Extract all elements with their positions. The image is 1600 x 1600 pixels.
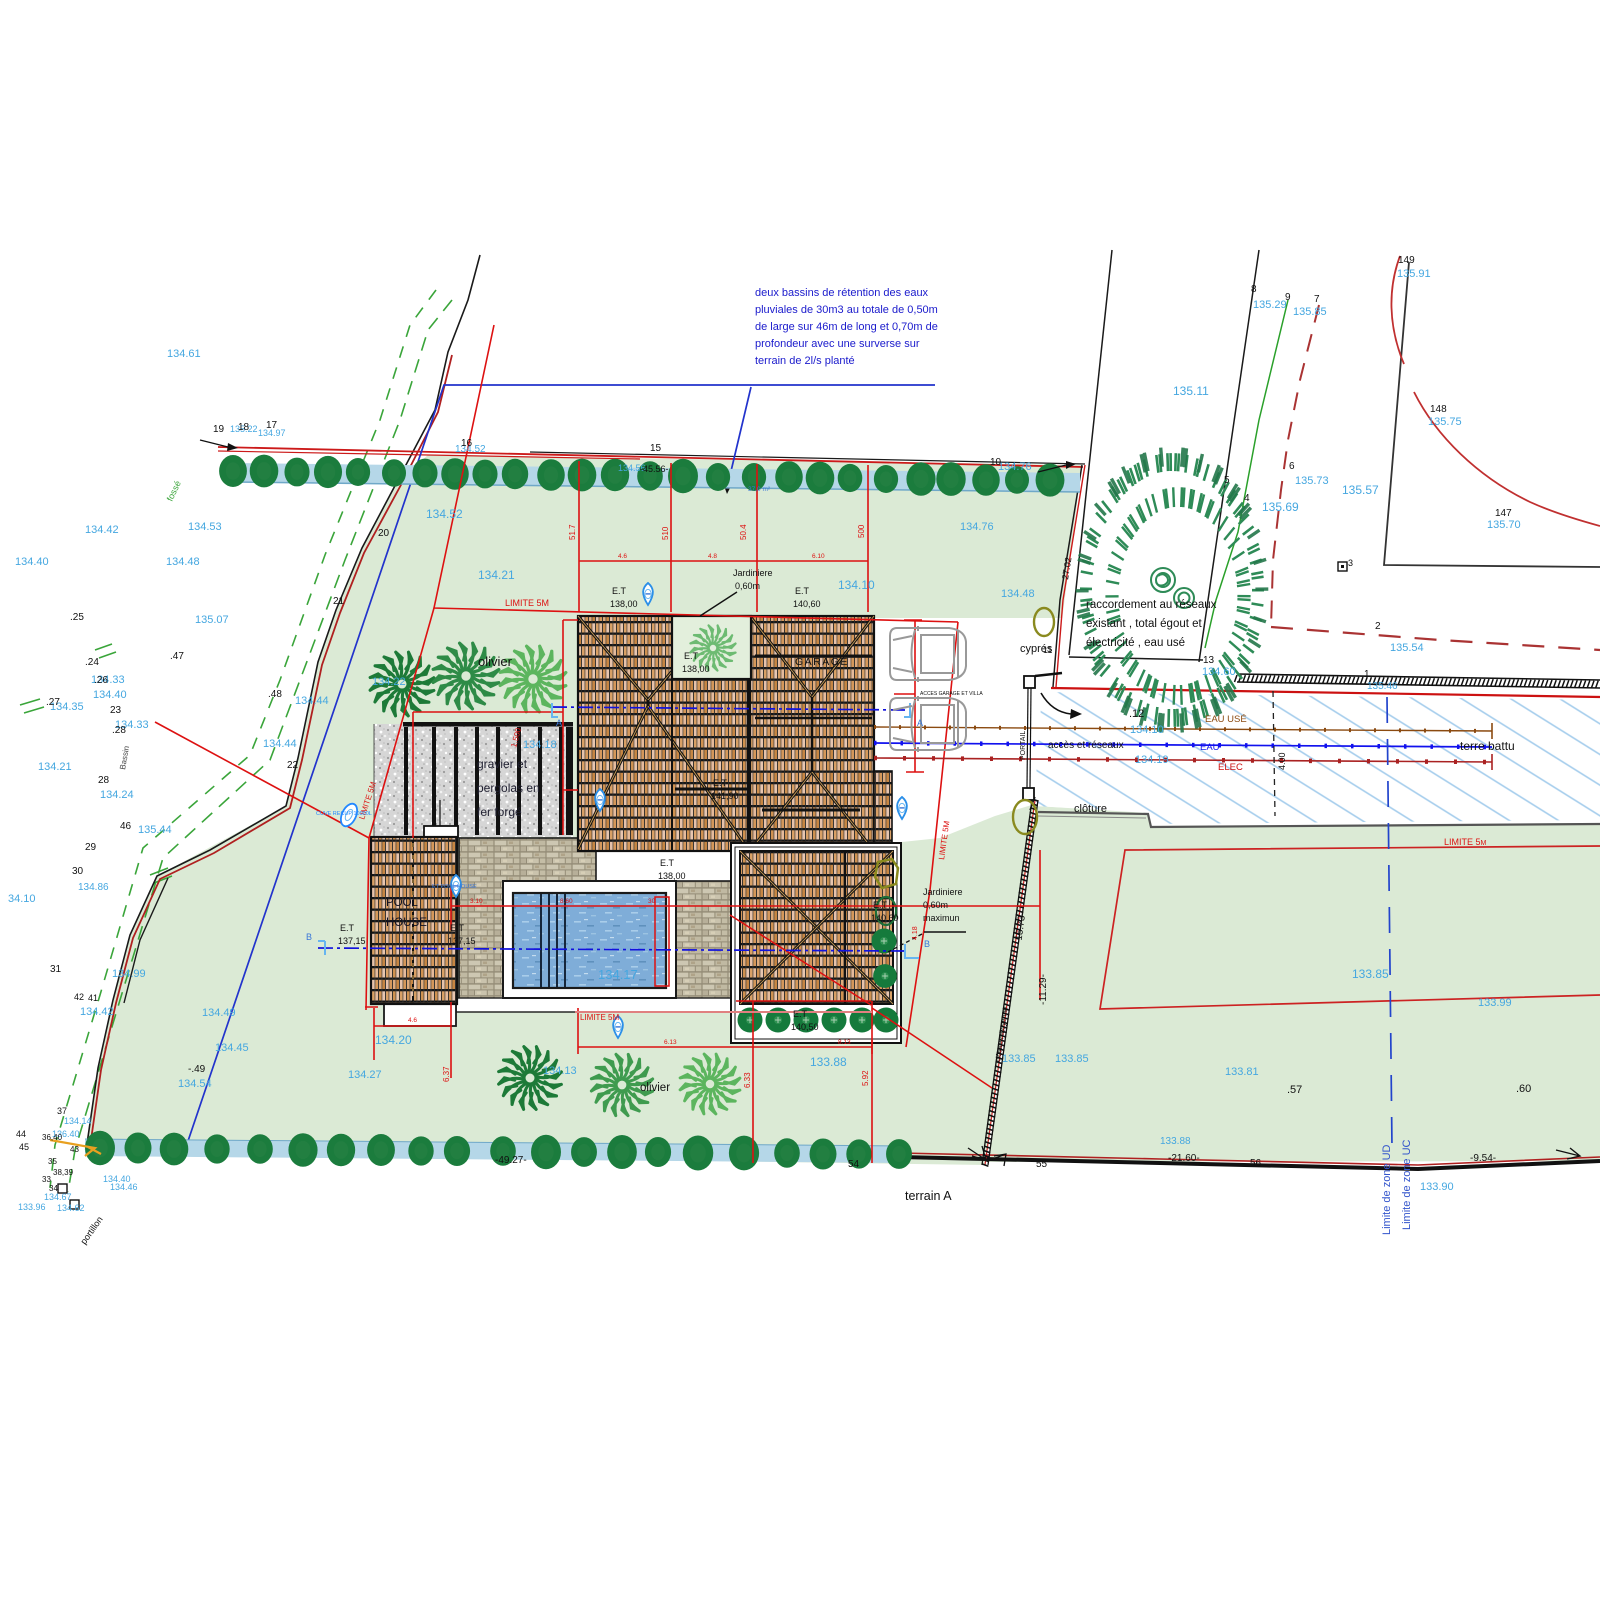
svg-text:134.27: 134.27: [348, 1069, 382, 1081]
svg-text:6.13: 6.13: [664, 1039, 677, 1046]
svg-text:134.60: 134.60: [1202, 666, 1236, 678]
svg-text:134.53: 134.53: [188, 521, 222, 533]
svg-text:raccordement au réseaux: raccordement au réseaux: [1086, 599, 1217, 611]
svg-text:134.76: 134.76: [960, 521, 994, 533]
svg-text:4.6: 4.6: [618, 553, 627, 560]
svg-text:B: B: [924, 939, 930, 949]
svg-text:pergolas en: pergolas en: [477, 781, 540, 795]
svg-text:5.92: 5.92: [861, 1070, 870, 1086]
svg-text:EAU USÉ: EAU USÉ: [1205, 714, 1247, 725]
svg-text:19: 19: [213, 424, 225, 435]
svg-text:35: 35: [48, 1157, 57, 1166]
svg-text:55: 55: [1036, 1159, 1048, 1170]
svg-text:fer forgé: fer forgé: [477, 805, 522, 819]
svg-text:134.21: 134.21: [38, 761, 72, 773]
svg-text:37: 37: [57, 1106, 67, 1116]
svg-text:31: 31: [50, 964, 62, 975]
svg-text:16: 16: [461, 438, 473, 449]
svg-text:134.42: 134.42: [85, 524, 119, 536]
svg-text:.28: .28: [112, 725, 126, 736]
svg-text:149: 149: [1398, 255, 1415, 266]
svg-text:43: 43: [70, 1145, 79, 1154]
svg-text:-45.56-: -45.56-: [640, 464, 669, 474]
svg-text:A: A: [917, 718, 923, 728]
svg-text:LIMITE 5M: LIMITE 5M: [580, 1013, 619, 1022]
svg-text:E.T: E.T: [660, 858, 675, 868]
svg-text:.60: .60: [1516, 1083, 1531, 1095]
svg-text:134.99: 134.99: [112, 968, 146, 980]
svg-text:133.81: 133.81: [1225, 1066, 1259, 1078]
svg-text:133.96: 133.96: [18, 1202, 46, 1212]
svg-text:4.6: 4.6: [408, 1017, 417, 1024]
svg-text:gravier et: gravier et: [477, 757, 528, 771]
svg-text:135.44: 135.44: [138, 824, 172, 836]
svg-text:36,40: 36,40: [42, 1133, 63, 1142]
svg-text:.47: .47: [170, 651, 184, 662]
svg-text:45: 45: [19, 1142, 29, 1152]
svg-text:134.52: 134.52: [426, 507, 463, 521]
svg-text:EAU: EAU: [1200, 742, 1220, 753]
svg-text:ELEC: ELEC: [1218, 762, 1243, 773]
svg-text:134.44: 134.44: [295, 695, 329, 707]
svg-text:8.13: 8.13: [838, 1039, 851, 1046]
svg-text:clôture: clôture: [1074, 803, 1107, 815]
svg-text:15: 15: [650, 443, 662, 454]
svg-text:510: 510: [661, 526, 670, 540]
svg-text:133.85: 133.85: [1055, 1053, 1089, 1065]
svg-text:4: 4: [1244, 493, 1250, 504]
svg-text:électricité , eau usé: électricité , eau usé: [1086, 637, 1185, 649]
svg-text:51.7: 51.7: [568, 524, 577, 540]
svg-text:134.49: 134.49: [202, 1007, 236, 1019]
svg-text:-49.27-: -49.27-: [495, 1155, 527, 1166]
svg-text:137,15: 137,15: [448, 936, 476, 946]
svg-text:134.42: 134.42: [80, 1006, 114, 1018]
svg-text:.25: .25: [70, 612, 84, 623]
svg-text:20: 20: [378, 528, 390, 539]
svg-text:21: 21: [333, 596, 345, 607]
svg-text:138,00: 138,00: [682, 664, 710, 674]
svg-text:134.44: 134.44: [263, 738, 297, 750]
svg-text:134.10: 134.10: [1130, 724, 1164, 736]
svg-text:-9.54-: -9.54-: [1470, 1153, 1496, 1164]
svg-text:135.29: 135.29: [1253, 299, 1287, 311]
svg-text:500: 500: [857, 524, 866, 538]
svg-text:terrain A: terrain A: [905, 1189, 952, 1203]
svg-text:-.49: -.49: [188, 1064, 206, 1075]
svg-text:E.T: E.T: [612, 586, 627, 596]
svg-text:9: 9: [1285, 292, 1291, 303]
svg-text:10: 10: [990, 457, 1002, 468]
svg-text:olivier: olivier: [478, 654, 513, 669]
svg-text:LIMITE 5M: LIMITE 5M: [505, 598, 549, 608]
svg-text:-11.29-: -11.29-: [1038, 974, 1049, 1005]
svg-text:134.45: 134.45: [215, 1042, 249, 1054]
svg-text:34.10: 34.10: [8, 893, 36, 905]
svg-text:5: 5: [1224, 475, 1230, 486]
svg-text:134.40: 134.40: [93, 689, 127, 701]
svg-text:E.T: E.T: [340, 923, 355, 933]
svg-text:-21.60-: -21.60-: [1168, 1153, 1200, 1164]
svg-text:cyprés: cyprés: [1020, 643, 1053, 655]
svg-text:134.24: 134.24: [100, 789, 134, 801]
svg-text:134.22: 134.22: [372, 676, 406, 688]
svg-text:deux bassins de rétention des: deux bassins de rétention des eaux: [755, 287, 929, 299]
svg-text:terre battu: terre battu: [1460, 739, 1515, 753]
svg-text:134.10: 134.10: [838, 578, 875, 592]
svg-text:134.46: 134.46: [110, 1182, 138, 1192]
svg-text:135.73: 135.73: [1295, 475, 1329, 487]
svg-text:134.14: 134.14: [64, 1116, 92, 1126]
svg-text:profondeur avec une surverse: profondeur avec une surverse sur: [755, 338, 920, 350]
svg-text:GARAGE: GARAGE: [795, 656, 849, 668]
svg-text:134.67: 134.67: [44, 1192, 72, 1202]
svg-text:0,60m: 0,60m: [735, 581, 760, 591]
svg-text:134.19: 134.19: [1135, 754, 1169, 766]
svg-text:30: 30: [72, 866, 84, 877]
svg-text:4.18: 4.18: [912, 926, 919, 940]
svg-text:148: 148: [1430, 404, 1447, 415]
svg-text:134.20: 134.20: [375, 1033, 412, 1047]
svg-text:7: 7: [1314, 294, 1320, 305]
svg-text:E.T: E.T: [713, 778, 728, 788]
svg-text:A: A: [556, 718, 562, 728]
svg-text:46: 46: [120, 821, 132, 832]
svg-text:.48: .48: [268, 689, 282, 700]
svg-text:B: B: [306, 932, 312, 942]
svg-text:30: 30: [648, 898, 656, 905]
svg-text:E.T: E.T: [450, 923, 465, 933]
svg-text:.24: .24: [85, 657, 99, 668]
svg-text:PORTAIL: PORTAIL: [1020, 731, 1027, 760]
svg-text:133.88: 133.88: [1160, 1136, 1191, 1147]
svg-text:Limite de zone UD: Limite de zone UD: [1381, 1144, 1393, 1235]
svg-text:135.75: 135.75: [1428, 416, 1462, 428]
svg-text:133.85: 133.85: [1002, 1053, 1036, 1065]
svg-text:6.37: 6.37: [442, 1066, 451, 1082]
svg-text:134.40: 134.40: [15, 556, 49, 568]
svg-text:8: 8: [1251, 284, 1257, 295]
svg-text:37,0 m²: 37,0 m²: [748, 486, 771, 493]
svg-text:de large sur 46m de long et 0,: de large sur 46m de long et 0,70m de: [755, 321, 938, 333]
svg-text:133.88: 133.88: [810, 1055, 847, 1069]
svg-text:33: 33: [42, 1175, 51, 1184]
svg-text:134.13: 134.13: [543, 1065, 577, 1077]
svg-text:22: 22: [287, 760, 299, 771]
svg-text:141,90: 141,90: [711, 791, 739, 801]
svg-text:E.T: E.T: [684, 651, 699, 661]
svg-text:1: 1: [1364, 669, 1370, 680]
svg-text:135.91: 135.91: [1397, 268, 1431, 280]
svg-text:6.33: 6.33: [743, 1072, 752, 1088]
svg-text:3: 3: [1348, 558, 1353, 568]
svg-text:.12: .12: [1129, 708, 1144, 720]
svg-text:23: 23: [110, 705, 122, 716]
svg-text:135.69: 135.69: [1262, 500, 1299, 514]
svg-text:140,50: 140,50: [791, 1022, 819, 1032]
svg-text:Jardiniere: Jardiniere: [733, 568, 773, 578]
svg-text:terrain de 2l/s planté: terrain de 2l/s planté: [755, 355, 855, 367]
svg-text:135.46: 135.46: [1367, 681, 1398, 692]
svg-text:134.62: 134.62: [57, 1203, 85, 1213]
svg-text:134.17: 134.17: [598, 967, 638, 982]
svg-text:134.48: 134.48: [1001, 588, 1035, 600]
svg-text:135.11: 135.11: [1173, 384, 1209, 398]
svg-text:135.54: 135.54: [1390, 642, 1424, 654]
svg-text:ACCES GARAGE ET VILLA: ACCES GARAGE ET VILLA: [920, 691, 983, 697]
svg-text:134.54: 134.54: [178, 1078, 212, 1090]
svg-text:Limite de zone UC: Limite de zone UC: [1401, 1139, 1413, 1230]
svg-text:CUVE RECUP 10000L: CUVE RECUP 10000L: [316, 811, 372, 817]
svg-text:2: 2: [1375, 621, 1381, 632]
svg-text:147: 147: [1495, 508, 1512, 519]
svg-text:6: 6: [1289, 461, 1295, 472]
svg-text:0,60m: 0,60m: [923, 900, 948, 910]
svg-text:olivier: olivier: [640, 1082, 670, 1094]
svg-text:maximun: maximun: [923, 913, 960, 923]
svg-text:54: 54: [848, 1159, 860, 1170]
svg-text:.27: .27: [46, 697, 60, 708]
svg-text:133.99: 133.99: [1478, 997, 1512, 1009]
svg-text:137,15: 137,15: [338, 936, 366, 946]
svg-text:E.T: E.T: [795, 586, 810, 596]
svg-text:41: 41: [88, 993, 98, 1003]
svg-text:133.90: 133.90: [1420, 1181, 1454, 1193]
svg-text:34: 34: [49, 1184, 58, 1193]
svg-text:134.18: 134.18: [523, 739, 557, 751]
svg-text:56: 56: [1250, 1158, 1262, 1169]
svg-text:28: 28: [98, 775, 110, 786]
svg-text:POOL: POOL: [386, 897, 419, 909]
svg-text:134.76: 134.76: [998, 461, 1032, 473]
svg-text:18: 18: [238, 422, 250, 433]
svg-text:140,60: 140,60: [793, 599, 821, 609]
svg-text:Jardiniere: Jardiniere: [923, 887, 963, 897]
svg-text:140,60: 140,60: [871, 913, 899, 923]
svg-text:existant , total égout et: existant , total égout et: [1086, 618, 1203, 630]
svg-text:134.21: 134.21: [478, 568, 515, 582]
svg-text:135.85: 135.85: [1293, 306, 1327, 318]
svg-text:4.00: 4.00: [1277, 752, 1287, 770]
svg-text:50.4: 50.4: [739, 524, 748, 540]
svg-text:135.57: 135.57: [1342, 483, 1379, 497]
svg-text:44: 44: [16, 1129, 26, 1139]
svg-text:ET POOL HOUSE: ET POOL HOUSE: [432, 884, 477, 890]
svg-text:accès et réseaux: accès et réseaux: [1048, 740, 1124, 751]
svg-text:138,00: 138,00: [610, 599, 638, 609]
svg-text:.57: .57: [1287, 1084, 1302, 1096]
svg-text:4.8: 4.8: [708, 553, 717, 560]
svg-text:17: 17: [266, 420, 278, 431]
svg-text:E.T: E.T: [873, 900, 888, 910]
svg-text:13: 13: [1203, 655, 1215, 666]
svg-text:3.10: 3.10: [470, 898, 483, 905]
svg-text:133.85: 133.85: [1352, 967, 1389, 981]
svg-text:134.86: 134.86: [78, 882, 109, 893]
svg-text:134.48: 134.48: [166, 556, 200, 568]
svg-text:8.60: 8.60: [560, 898, 573, 905]
svg-text:135.70: 135.70: [1487, 519, 1521, 531]
svg-text:.26: .26: [94, 675, 108, 686]
svg-text:pluviales de 30m3 au totale d: pluviales de 30m3 au totale de 0,50m: [755, 304, 938, 316]
svg-text:E.T: E.T: [793, 1009, 808, 1019]
svg-text:42: 42: [74, 992, 84, 1002]
svg-text:6.10: 6.10: [812, 553, 825, 560]
svg-text:135.07: 135.07: [195, 614, 229, 626]
svg-text:134.61: 134.61: [167, 348, 201, 360]
svg-text:HOUSE: HOUSE: [386, 917, 427, 929]
svg-text:138,00: 138,00: [658, 871, 686, 881]
svg-text:29: 29: [85, 842, 97, 853]
svg-text:38,39: 38,39: [53, 1168, 74, 1177]
svg-text:LIMITE 5M: LIMITE 5M: [1444, 837, 1487, 847]
